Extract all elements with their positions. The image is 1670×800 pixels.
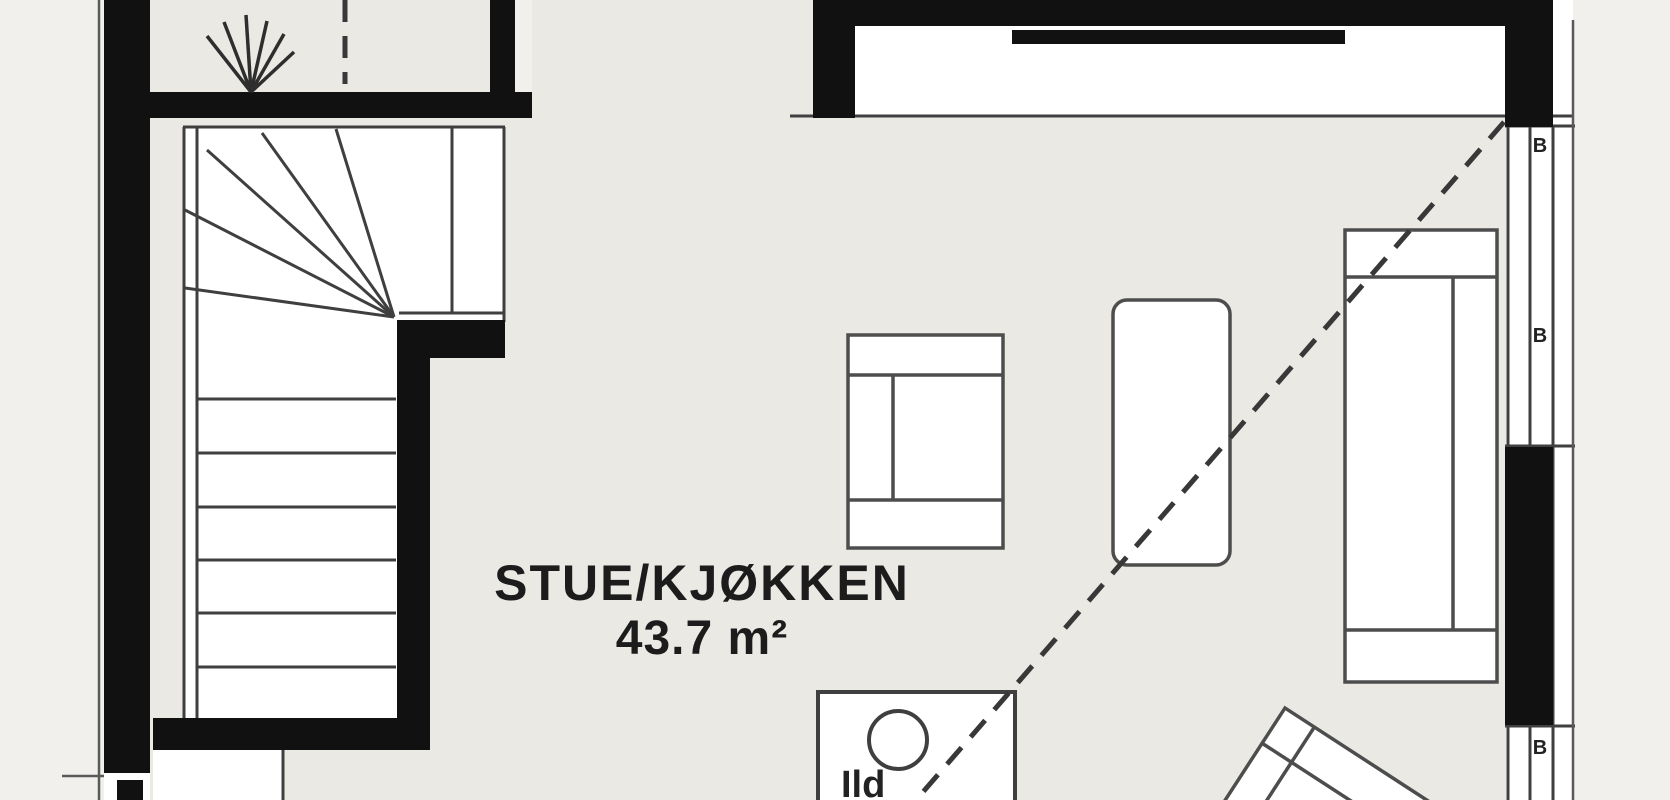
top-window-sliding-leaf [1012, 30, 1345, 44]
upper-room-floor [150, 0, 493, 92]
top-window-mullion-tick-1 [1058, 0, 1062, 10]
stairwell-lower [183, 126, 430, 750]
window-mark-bottom: B [1533, 737, 1547, 759]
floor-plan-canvas: STUE/KJØKKEN 43.7 m² Ild B B B [0, 0, 1670, 800]
room-area-label: 43.7 m² [616, 612, 788, 665]
upper-room-bottom-wall [142, 92, 532, 118]
stove-flue-circle [869, 711, 927, 769]
top-window-mullion-tick-2 [1273, 0, 1277, 10]
floor-plan: STUE/KJØKKEN 43.7 m² Ild B B B [0, 0, 1670, 800]
room-name-label: STUE/KJØKKEN [494, 555, 910, 611]
window-mark-middle: B [1533, 325, 1547, 347]
top-window-left-jamb [813, 0, 855, 118]
stair-bottom-wall [153, 718, 430, 750]
armchair [848, 335, 1003, 548]
passage-floor [532, 0, 813, 118]
top-wall-window-head [855, 0, 1507, 26]
coffee-table [1113, 300, 1230, 565]
door-jamb-block [117, 780, 143, 800]
right-wall-segment [1505, 447, 1553, 725]
upper-room-right-wall-stub [490, 0, 515, 92]
top-right-corner-wall [1505, 0, 1553, 127]
sofa [1345, 230, 1497, 682]
door-opening-below-stairs [153, 750, 283, 800]
window-mark-top: B [1533, 135, 1547, 157]
wood-stove-label: Ild [841, 764, 885, 800]
right-corner-gap [1553, 0, 1573, 127]
stair-right-wall [397, 320, 430, 745]
